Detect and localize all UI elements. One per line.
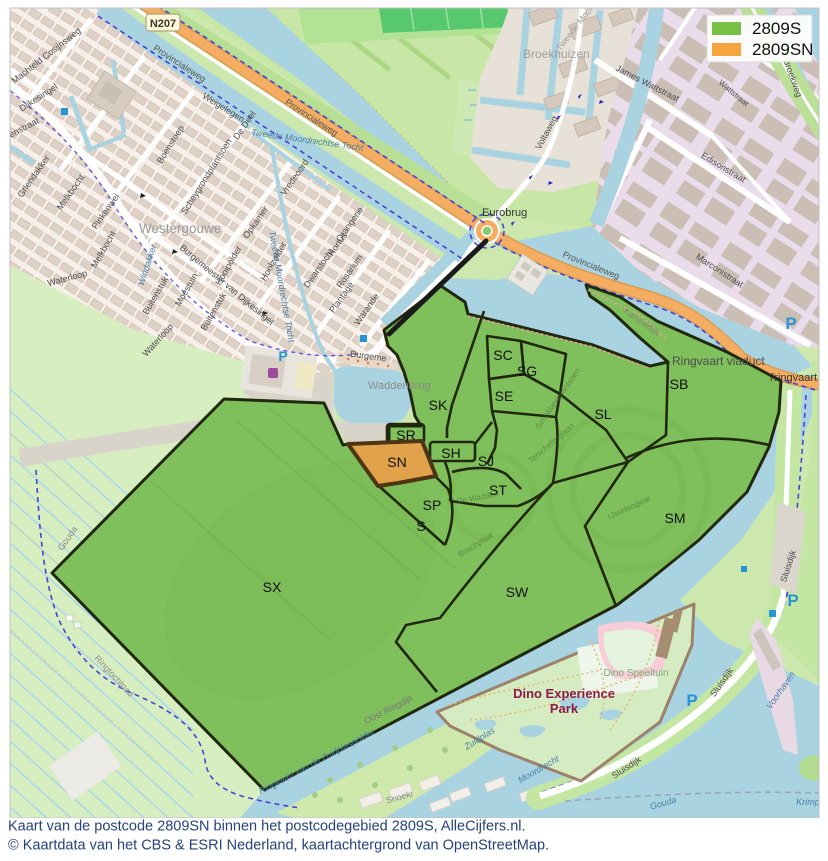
svg-text:SW: SW (506, 584, 529, 600)
svg-text:P: P (787, 591, 798, 610)
svg-text:ST: ST (489, 482, 507, 498)
svg-text:P: P (785, 314, 796, 333)
svg-text:SR: SR (396, 427, 415, 443)
svg-text:Tringvaart: Tringvaart (768, 372, 817, 384)
svg-text:SB: SB (670, 376, 689, 392)
svg-text:Dino Speeltuin: Dino Speeltuin (603, 668, 668, 679)
svg-text:N207: N207 (150, 18, 176, 30)
svg-text:Krimp: Krimp (796, 797, 820, 807)
svg-text:Kaart van de postcode 2809SN b: Kaart van de postcode 2809SN binnen het … (8, 819, 526, 835)
svg-text:SP: SP (423, 497, 442, 513)
svg-text:SJ: SJ (478, 453, 494, 469)
svg-text:SX: SX (263, 579, 282, 595)
svg-text:2809SN: 2809SN (752, 40, 813, 59)
svg-text:P: P (686, 691, 697, 710)
svg-text:© Kaartdata van het CBS & ESRI: © Kaartdata van het CBS & ESRI Nederland… (8, 838, 549, 854)
svg-text:Ringvaart viaduct: Ringvaart viaduct (672, 354, 765, 368)
svg-text:Dino Experience: Dino Experience (513, 686, 615, 701)
svg-text:SM: SM (665, 510, 686, 526)
svg-text:Eurobrug: Eurobrug (482, 207, 527, 219)
svg-text:SC: SC (493, 347, 512, 363)
svg-text:SH: SH (441, 445, 460, 461)
svg-text:SG: SG (517, 363, 537, 379)
svg-text:Waddenbrug: Waddenbrug (368, 380, 431, 392)
svg-text:2809S: 2809S (752, 19, 801, 38)
svg-text:SN: SN (387, 454, 406, 470)
svg-text:SL: SL (594, 406, 611, 422)
svg-text:Westergouwe: Westergouwe (139, 221, 221, 236)
svg-text:Park: Park (550, 701, 579, 716)
svg-text:P: P (278, 348, 287, 364)
svg-text:S: S (416, 518, 425, 534)
svg-text:SK: SK (429, 397, 448, 413)
svg-text:SE: SE (495, 388, 514, 404)
